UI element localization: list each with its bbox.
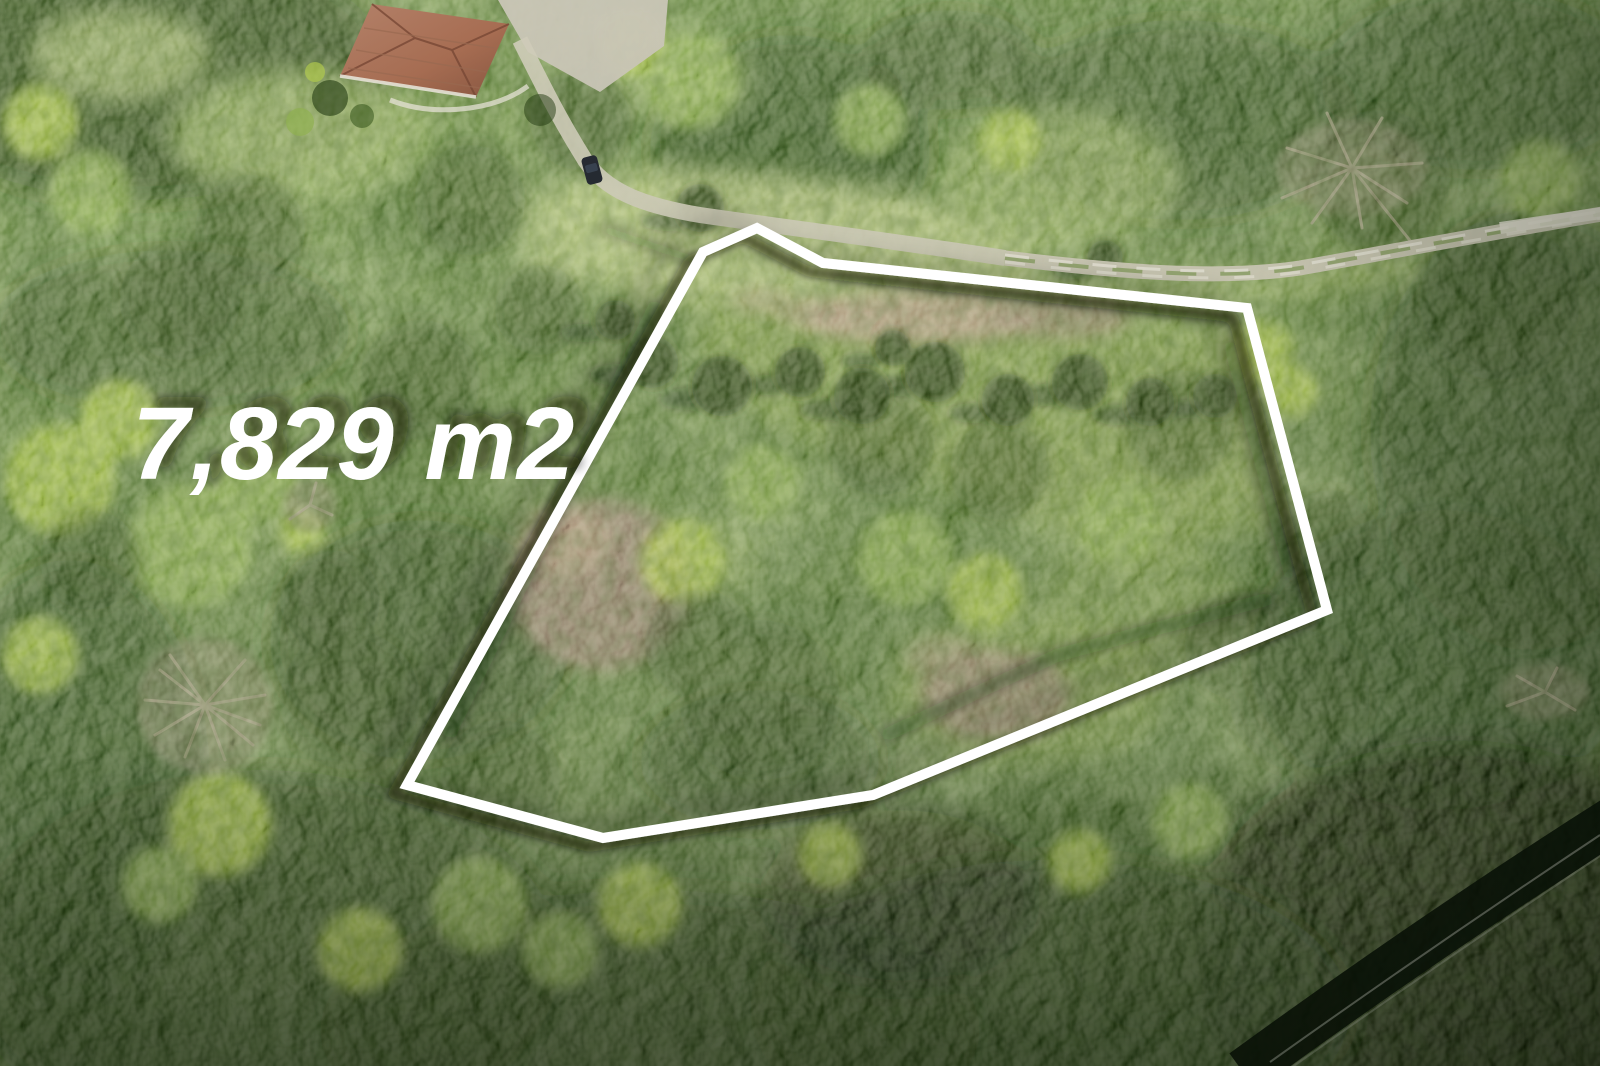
vignette-right: [0, 0, 1600, 1066]
area-label: 7,829 m2: [132, 386, 575, 501]
aerial-photo-stage: 7,829 m2: [0, 0, 1600, 1066]
aerial-photo: 7,829 m2: [0, 0, 1600, 1066]
